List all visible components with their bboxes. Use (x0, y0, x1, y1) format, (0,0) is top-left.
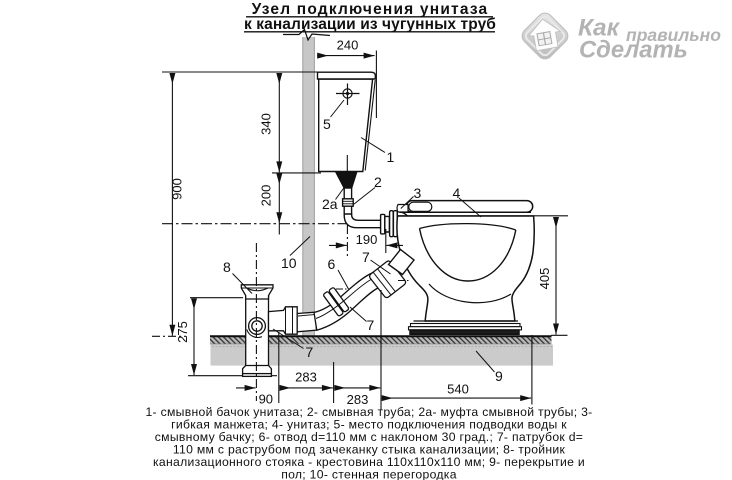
svg-text:900: 900 (170, 178, 185, 200)
svg-text:240: 240 (337, 38, 359, 53)
svg-text:к канализации из чугунных труб: к канализации из чугунных труб (244, 16, 496, 33)
svg-text:10: 10 (281, 255, 297, 271)
svg-text:Сделать: Сделать (579, 37, 688, 64)
svg-text:275: 275 (175, 321, 190, 343)
svg-text:7: 7 (367, 317, 375, 333)
svg-text:4: 4 (453, 185, 461, 201)
svg-text:1: 1 (387, 149, 395, 165)
svg-text:8: 8 (223, 259, 231, 275)
svg-text:405: 405 (537, 268, 552, 290)
svg-text:7: 7 (362, 249, 370, 265)
svg-text:2a: 2a (322, 196, 338, 212)
svg-text:6: 6 (328, 256, 336, 272)
svg-text:3: 3 (414, 185, 422, 201)
svg-text:540: 540 (447, 382, 469, 397)
svg-text:2: 2 (374, 174, 382, 190)
svg-text:7: 7 (306, 344, 314, 360)
svg-text:9: 9 (495, 368, 503, 384)
svg-text:190: 190 (356, 232, 378, 247)
svg-text:200: 200 (259, 185, 274, 207)
svg-text:5: 5 (323, 116, 331, 132)
svg-text:283: 283 (295, 370, 317, 385)
svg-text:340: 340 (259, 113, 274, 135)
svg-text:пол; 10- стенная перегородка: пол; 10- стенная перегородка (281, 468, 457, 480)
